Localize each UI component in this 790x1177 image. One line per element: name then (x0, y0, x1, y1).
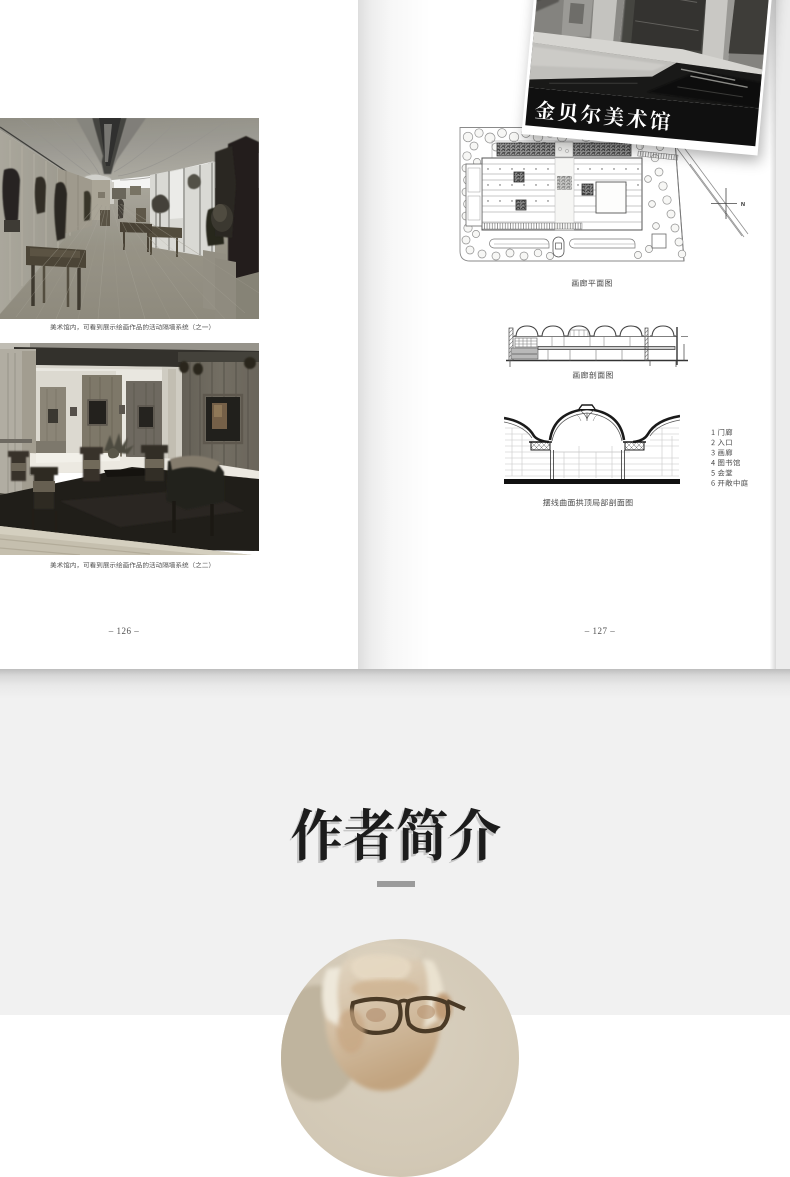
svg-text:N: N (741, 202, 745, 208)
